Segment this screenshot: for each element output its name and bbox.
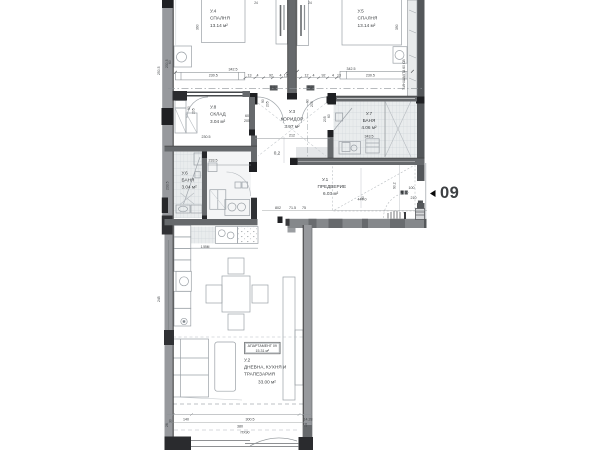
svg-text:12: 12	[305, 73, 309, 77]
svg-text:802: 802	[275, 206, 281, 210]
svg-text:У.6: У.6	[182, 171, 189, 176]
svg-text:24: 24	[308, 1, 312, 5]
svg-text:210: 210	[411, 196, 417, 200]
svg-text:09: 09	[440, 184, 459, 202]
svg-text:60: 60	[245, 114, 249, 118]
svg-text:3.04 м²: 3.04 м²	[210, 119, 226, 124]
svg-text:БАНЯ: БАНЯ	[363, 118, 376, 123]
svg-text:3.04 м²: 3.04 м²	[182, 185, 198, 190]
svg-text:80: 80	[361, 196, 365, 200]
svg-text:У.8: У.8	[210, 105, 217, 110]
svg-text:У.3: У.3	[289, 109, 296, 114]
svg-text:205: 205	[323, 116, 327, 122]
svg-text:342.5: 342.5	[347, 67, 356, 71]
svg-text:205: 205	[310, 101, 314, 107]
svg-text:230.5: 230.5	[209, 74, 218, 78]
svg-text:342.5: 342.5	[229, 68, 238, 72]
svg-text:205: 205	[244, 119, 250, 123]
svg-text:13.14 м²: 13.14 м²	[210, 23, 228, 28]
svg-text:205: 205	[192, 108, 196, 114]
svg-text:3.97 м²: 3.97 м²	[284, 124, 300, 129]
svg-text:15.31 м²: 15.31 м²	[255, 349, 269, 353]
svg-text:92: 92	[322, 73, 326, 77]
svg-text:У.5: У.5	[358, 9, 365, 14]
svg-text:24: 24	[254, 1, 258, 5]
svg-text:230.5: 230.5	[366, 73, 375, 77]
svg-text:233.5: 233.5	[166, 181, 170, 190]
svg-text:У.1: У.1	[322, 177, 329, 182]
svg-text:12: 12	[284, 73, 288, 77]
svg-text:75: 75	[302, 206, 306, 210]
svg-text:26: 26	[418, 200, 422, 204]
svg-text:90: 90	[261, 99, 265, 103]
svg-text:90.2: 90.2	[393, 182, 397, 189]
svg-text:Т.ИН.ШАХТА 60 СВ: Т.ИН.ШАХТА 60 СВ	[402, 59, 406, 90]
svg-text:ПХ90: ПХ90	[241, 431, 250, 435]
svg-text:60: 60	[168, 60, 172, 64]
svg-text:14: 14	[304, 423, 308, 427]
svg-text:4: 4	[257, 73, 259, 77]
svg-text:140: 140	[183, 418, 189, 422]
svg-text:230.5: 230.5	[202, 135, 211, 139]
svg-text:ТРАПЕЗАРИЯ: ТРАПЕЗАРИЯ	[244, 372, 275, 377]
svg-text:205: 205	[266, 101, 270, 107]
svg-text:212: 212	[289, 134, 295, 138]
svg-text:АПАРТАМЕНТ 09: АПАРТАМЕНТ 09	[248, 344, 277, 348]
svg-text:233.5: 233.5	[209, 159, 218, 163]
svg-text:60: 60	[327, 114, 331, 118]
svg-text:6.03 м²: 6.03 м²	[323, 191, 339, 196]
svg-text:90: 90	[306, 99, 310, 103]
svg-text:390: 390	[395, 24, 399, 30]
svg-text:92: 92	[269, 73, 273, 77]
svg-text:ПРЕДВЕРИЕ: ПРЕДВЕРИЕ	[318, 184, 347, 189]
svg-text:4.06 м²: 4.06 м²	[361, 125, 377, 130]
svg-text:343.5: 343.5	[365, 135, 374, 139]
svg-text:13: 13	[248, 73, 252, 77]
svg-text:4: 4	[332, 73, 334, 77]
svg-text:КОРИДОР: КОРИДОР	[281, 117, 304, 122]
svg-text:300.5: 300.5	[246, 418, 255, 422]
svg-text:У.4: У.4	[210, 9, 217, 14]
svg-text:ДНЕВНА, КУХНЯ И: ДНЕВНА, КУХНЯ И	[244, 365, 286, 370]
svg-text:СПАЛНЯ: СПАЛНЯ	[358, 16, 378, 21]
svg-text:У.7: У.7	[366, 111, 373, 116]
svg-text:250.5: 250.5	[157, 66, 161, 75]
svg-text:У.2: У.2	[244, 358, 251, 363]
svg-text:245: 245	[157, 296, 161, 302]
svg-text:390: 390	[196, 24, 200, 30]
svg-text:4: 4	[280, 73, 282, 77]
svg-text:100: 100	[409, 186, 415, 190]
svg-text:СКЛАД: СКЛАД	[210, 112, 226, 117]
svg-text:СПАЛНЯ: СПАЛНЯ	[210, 16, 230, 21]
svg-text:90: 90	[187, 106, 191, 110]
svg-text:33.00 м²: 33.00 м²	[258, 380, 276, 385]
svg-text:БАНЯ: БАНЯ	[182, 178, 195, 183]
svg-text:1.55М: 1.55М	[201, 245, 210, 249]
svg-text:380: 380	[237, 425, 243, 429]
svg-text:13.14 м²: 13.14 м²	[358, 23, 376, 28]
svg-text:14.28: 14.28	[304, 418, 313, 422]
svg-text:0,2: 0,2	[274, 151, 281, 156]
svg-text:71.5: 71.5	[289, 206, 296, 210]
svg-text:4: 4	[313, 73, 315, 77]
